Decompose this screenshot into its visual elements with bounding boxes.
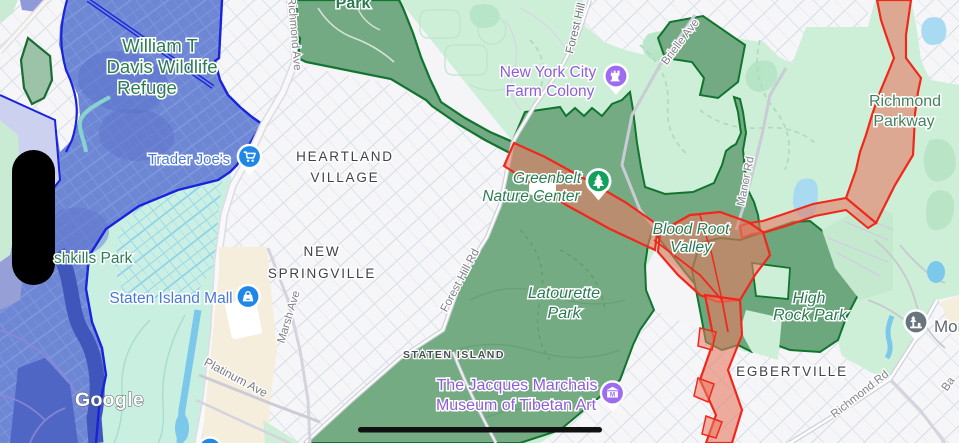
svg-text:High: High: [793, 290, 826, 307]
svg-text:Nature Center: Nature Center: [482, 188, 580, 205]
svg-text:shkills Park: shkills Park: [54, 250, 133, 267]
svg-text:Parkway: Parkway: [873, 113, 934, 130]
svg-text:Richmond: Richmond: [869, 93, 941, 110]
svg-text:M: M: [610, 391, 615, 398]
svg-text:Davis Wildlife: Davis Wildlife: [106, 56, 217, 77]
svg-text:New York City: New York City: [500, 64, 597, 81]
svg-text:Museum of Tibetan Art: Museum of Tibetan Art: [436, 397, 597, 414]
svg-text:Greenbelt: Greenbelt: [513, 170, 582, 187]
svg-text:Park: Park: [548, 305, 582, 322]
svg-text:Mor: Mor: [934, 317, 959, 336]
svg-text:Park: Park: [336, 0, 371, 12]
svg-text:EGBERTVILLE: EGBERTVILLE: [736, 364, 848, 379]
svg-text:William T: William T: [122, 35, 198, 56]
svg-text:Trader Joe's: Trader Joe's: [148, 151, 230, 168]
svg-text:Blood Root: Blood Root: [653, 221, 730, 238]
svg-text:Staten Island Mall: Staten Island Mall: [109, 290, 232, 307]
svg-text:Rock Park: Rock Park: [773, 307, 848, 324]
svg-text:VILLAGE: VILLAGE: [311, 170, 380, 185]
svg-text:The Jacques Marchais: The Jacques Marchais: [437, 377, 598, 394]
svg-text:Latourette: Latourette: [528, 285, 600, 302]
svg-text:Valley: Valley: [670, 239, 713, 256]
svg-text:HEARTLAND: HEARTLAND: [296, 149, 394, 164]
svg-text:NEW: NEW: [304, 244, 341, 259]
svg-text:STATEN ISLAND: STATEN ISLAND: [403, 349, 505, 361]
svg-text:SPRINGVILLE: SPRINGVILLE: [268, 266, 376, 281]
svg-text:Google: Google: [75, 389, 144, 411]
svg-text:Farm Colony: Farm Colony: [506, 83, 595, 100]
svg-text:Refuge: Refuge: [117, 77, 177, 98]
